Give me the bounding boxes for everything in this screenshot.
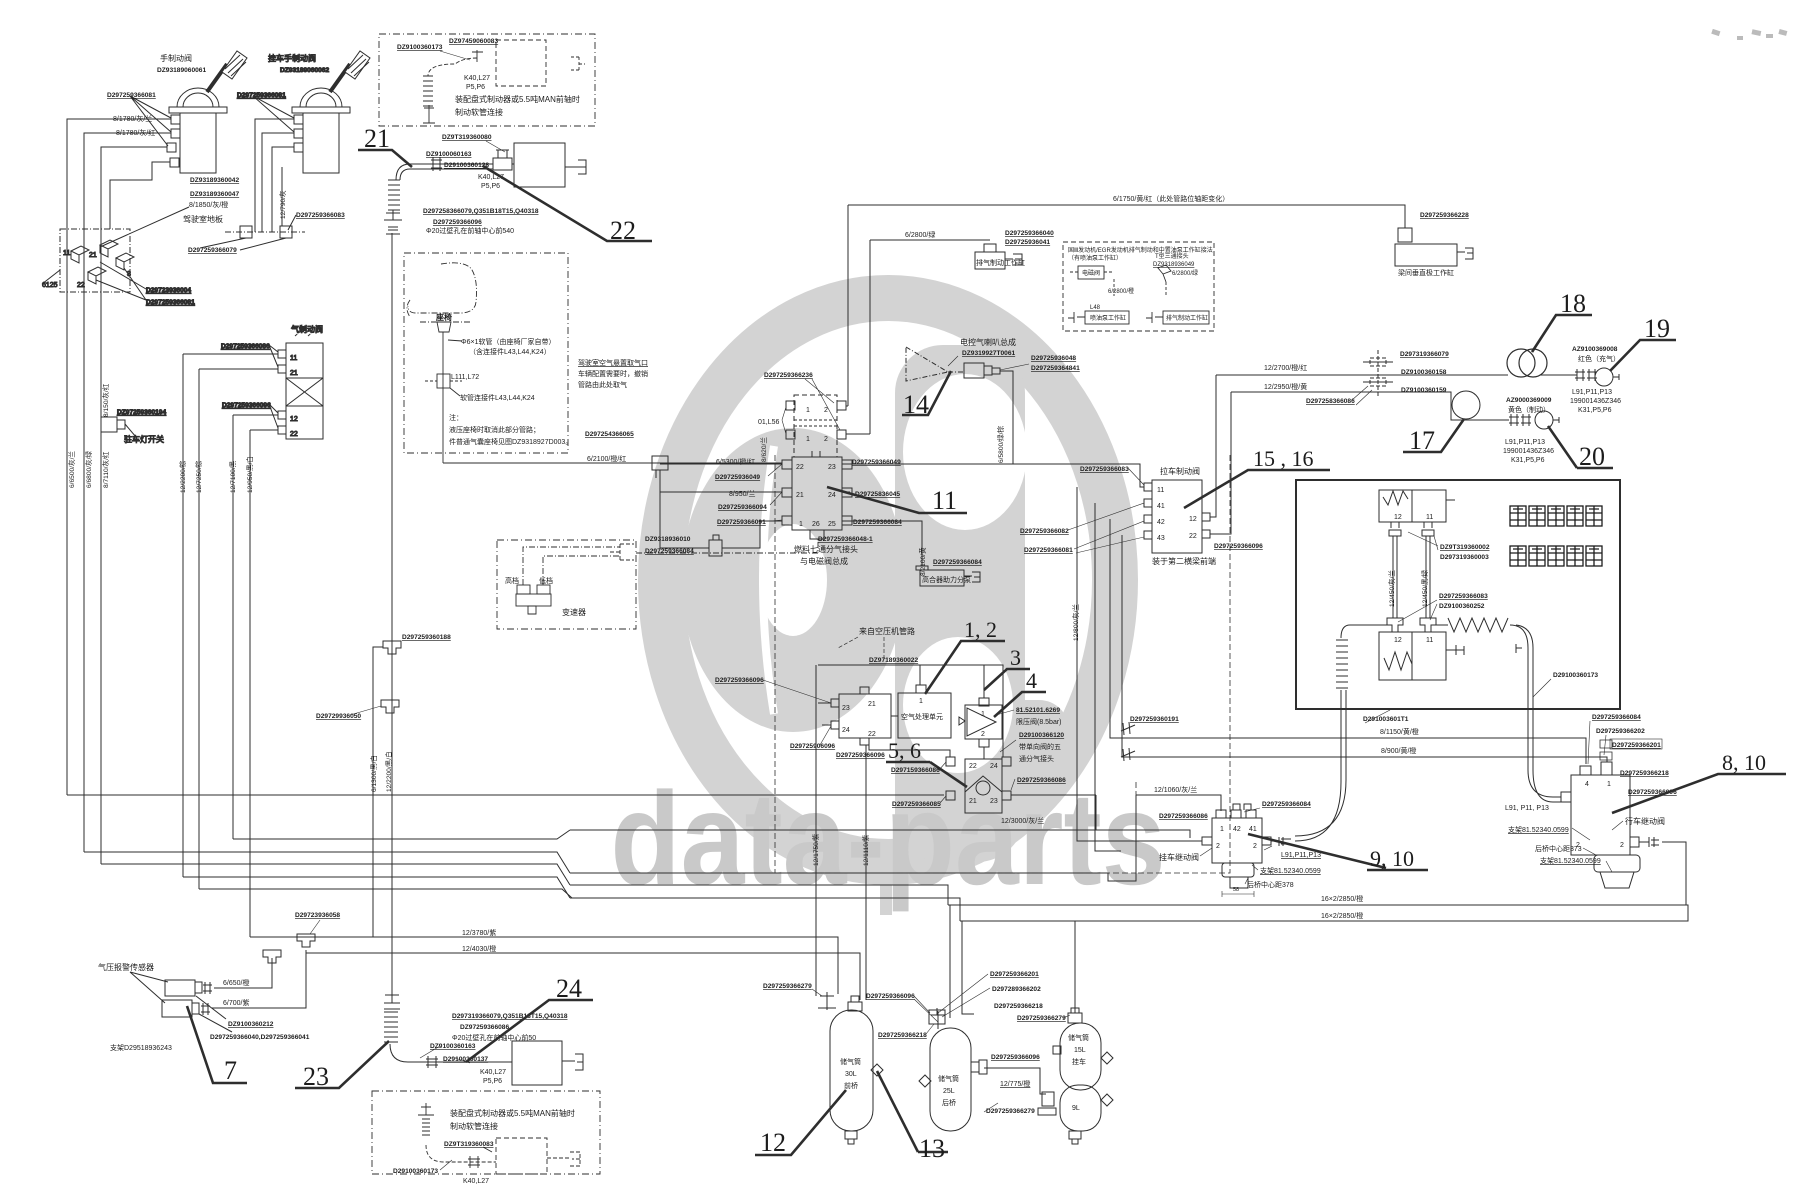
svg-text:12/450/灰/兰: 12/450/灰/兰	[1387, 570, 1396, 607]
svg-text:后桥: 后桥	[942, 1098, 956, 1107]
svg-text:后桥中心距373: 后桥中心距373	[1535, 844, 1582, 853]
svg-text:9L: 9L	[1072, 1105, 1080, 1112]
svg-text:8/620/兰: 8/620/兰	[759, 437, 768, 462]
svg-text:装配盘式制动器或5.5吨MAN前轴时: 装配盘式制动器或5.5吨MAN前轴时	[450, 1108, 575, 1118]
svg-text:D297259366084: D297259366084	[1592, 714, 1641, 721]
svg-text:D29725936048: D29725936048	[1031, 355, 1076, 362]
svg-text:8/150/灰/红: 8/150/灰/红	[101, 383, 110, 417]
svg-text:储气筒: 储气筒	[840, 1057, 861, 1066]
svg-text:DZ9100360252: DZ9100360252	[1439, 603, 1485, 610]
svg-text:D297259366081: D297259366081	[1024, 547, 1073, 554]
svg-text:D297259366048-1: D297259366048-1	[818, 536, 873, 543]
svg-text:红色（充气）: 红色（充气）	[1578, 354, 1620, 363]
svg-text:D29729936050: D29729936050	[316, 713, 361, 720]
svg-text:2: 2	[1253, 843, 1257, 850]
svg-text:DZ97259360194: DZ97259360194	[117, 409, 166, 416]
svg-text:限压阀(8.5bar): 限压阀(8.5bar)	[1016, 717, 1062, 726]
svg-text:喷油泵工作缸: 喷油泵工作缸	[1090, 314, 1126, 322]
svg-text:6/5800/绿/棕: 6/5800/绿/棕	[996, 426, 1005, 463]
svg-text:22: 22	[868, 731, 876, 738]
svg-text:D29100360128: D29100360128	[444, 162, 489, 169]
svg-text:L91, P11, P13: L91, P11, P13	[1505, 805, 1549, 812]
svg-text:1: 1	[1220, 826, 1224, 833]
svg-text:6/2800/橙: 6/2800/橙	[1108, 287, 1134, 295]
svg-text:6/650/橙: 6/650/橙	[223, 978, 249, 987]
svg-text:42: 42	[1233, 826, 1241, 833]
svg-text:24: 24	[828, 492, 836, 499]
svg-text:DZ9100360163: DZ9100360163	[430, 1043, 476, 1050]
svg-text:DZ9318936010: DZ9318936010	[645, 536, 691, 543]
svg-text:驾驶室地板: 驾驶室地板	[183, 214, 223, 224]
svg-text:液压座椅时取消此部分管路；: 液压座椅时取消此部分管路；	[449, 425, 540, 434]
svg-text:2: 2	[1216, 843, 1220, 850]
svg-text:DZ9319927T0061: DZ9319927T0061	[962, 350, 1015, 357]
svg-text:D297259366218: D297259366218	[878, 1032, 927, 1039]
svg-text:6/1300/黑/白: 6/1300/黑/白	[369, 755, 378, 792]
svg-text:data-parts: data-parts	[610, 766, 1165, 913]
svg-text:23: 23	[303, 1062, 329, 1091]
svg-text:高合器助力分泵: 高合器助力分泵	[922, 575, 971, 584]
svg-text:12/3000/灰/兰: 12/3000/灰/兰	[1001, 816, 1044, 825]
svg-text:（有喷油泵工作缸）: （有喷油泵工作缸）	[1068, 254, 1122, 262]
svg-text:D297259366096: D297259366096	[991, 1054, 1040, 1061]
svg-text:8/1780/灰/兰: 8/1780/灰/兰	[113, 114, 152, 123]
svg-text:国Ⅲ发动机/EGR发动机排气制动和中置油泵工作缸接法: 国Ⅲ发动机/EGR发动机排气制动和中置油泵工作缸接法	[1068, 246, 1213, 254]
svg-text:D29100360137: D29100360137	[443, 1056, 488, 1063]
svg-text:12/2950/橙/黄: 12/2950/橙/黄	[1264, 382, 1307, 391]
svg-text:12/1750/紫: 12/1750/紫	[812, 833, 820, 866]
svg-text:D297259366279: D297259366279	[1017, 1015, 1066, 1022]
svg-text:制动软管连接: 制动软管连接	[450, 1121, 498, 1131]
svg-text:6/5300/橙/红: 6/5300/橙/红	[716, 457, 755, 466]
svg-text:D297259366218: D297259366218	[994, 1003, 1043, 1010]
svg-text:D297259366084: D297259366084	[1262, 801, 1311, 808]
svg-text:D29725936041: D29725936041	[1005, 239, 1050, 246]
svg-text:气制动阀: 气制动阀	[291, 324, 323, 334]
svg-text:12/7250/棕: 12/7250/棕	[194, 460, 203, 493]
svg-text:4: 4	[1026, 668, 1037, 693]
svg-text:排气制动工作缸: 排气制动工作缸	[1166, 314, 1208, 322]
svg-text:20: 20	[1579, 442, 1605, 471]
svg-text:D297259366228: D297259366228	[1420, 212, 1469, 219]
svg-text:12/1060/灰/兰: 12/1060/灰/兰	[1154, 785, 1197, 794]
svg-text:排气制动工作缸: 排气制动工作缸	[976, 258, 1025, 267]
svg-text:21: 21	[796, 492, 804, 499]
svg-text:D29100366120: D29100366120	[1019, 732, 1064, 739]
svg-text:22: 22	[290, 431, 298, 438]
svg-text:D297259366081: D297259366081	[237, 92, 286, 99]
svg-text:22: 22	[77, 282, 85, 289]
svg-text:12/2700/橙/红: 12/2700/橙/红	[1264, 363, 1307, 372]
svg-text:D297259366094: D297259366094	[718, 504, 767, 511]
svg-text:K40,L27: K40,L27	[480, 1069, 506, 1076]
svg-text:81.52101.6269: 81.52101.6269	[1016, 707, 1060, 714]
svg-text:DZ9T319360002: DZ9T319360002	[1440, 544, 1490, 551]
svg-text:K31,P5,P6: K31,P5,P6	[1578, 407, 1612, 414]
svg-text:驻车灯开关: 驻车灯开关	[124, 434, 164, 444]
svg-text:1: 1	[806, 436, 810, 443]
svg-text:1: 1	[806, 407, 810, 414]
svg-text:21: 21	[290, 370, 298, 377]
svg-text:DZ97459060083: DZ97459060083	[449, 38, 498, 45]
svg-text:D29725906096: D29725906096	[790, 743, 835, 750]
svg-text:1: 1	[981, 711, 985, 718]
svg-text:12/450/黑/绿: 12/450/黑/绿	[1420, 570, 1429, 607]
svg-text:D297258366086: D297258366086	[1306, 398, 1355, 405]
svg-text:15L: 15L	[1074, 1047, 1086, 1054]
svg-text:P5,P6: P5,P6	[466, 84, 485, 91]
svg-text:17: 17	[1409, 426, 1435, 455]
svg-text:DZ9100360173: DZ9100360173	[397, 44, 443, 51]
svg-text:D297259366040: D297259366040	[1005, 230, 1054, 237]
svg-text:16×2/2850/橙: 16×2/2850/橙	[1321, 894, 1363, 903]
svg-text:8/1780/灰/红: 8/1780/灰/红	[116, 128, 155, 137]
svg-text:1, 2: 1, 2	[964, 617, 997, 642]
svg-text:24: 24	[990, 763, 998, 770]
svg-text:22: 22	[1189, 533, 1197, 540]
svg-text:26: 26	[812, 521, 820, 528]
svg-text:3: 3	[1010, 645, 1021, 670]
svg-text:18: 18	[1560, 289, 1586, 318]
svg-text:42: 42	[1157, 519, 1165, 526]
svg-text:6/700/紫: 6/700/紫	[223, 999, 249, 1007]
svg-text:4: 4	[1585, 781, 1589, 788]
svg-text:D297259366236: D297259366236	[764, 372, 813, 379]
svg-text:D297259366279: D297259366279	[763, 983, 812, 990]
svg-text:12/800/灰/兰: 12/800/灰/兰	[1071, 604, 1080, 641]
svg-text:D29100360173: D29100360173	[1553, 672, 1598, 679]
svg-text:储气筒: 储气筒	[1068, 1033, 1089, 1042]
svg-text:6/2800/绿: 6/2800/绿	[1172, 269, 1198, 277]
svg-text:12: 12	[1394, 637, 1402, 644]
svg-text:199001436Z346: 199001436Z346	[1503, 448, 1554, 455]
svg-text:DZ9100060163: DZ9100060163	[426, 151, 472, 158]
svg-text:D297259366096: D297259366096	[222, 402, 271, 409]
svg-text:11: 11	[1426, 514, 1433, 521]
svg-text:D297159366086: D297159366086	[891, 767, 940, 774]
svg-text:D297259366202: D297259366202	[1596, 728, 1645, 735]
svg-text:D29725936049: D29725936049	[715, 474, 760, 481]
svg-text:D297319360003: D297319360003	[1440, 554, 1489, 561]
svg-text:变速器: 变速器	[562, 607, 586, 617]
svg-text:带单向阀的五: 带单向阀的五	[1019, 742, 1061, 751]
svg-text:DZ97189360022: DZ97189360022	[869, 657, 918, 664]
svg-text:D29100360173: D29100360173	[393, 1168, 438, 1175]
svg-text:D297259366084: D297259366084	[645, 548, 694, 555]
svg-text:23: 23	[842, 705, 850, 712]
svg-text:P5,P6: P5,P6	[483, 1078, 502, 1085]
svg-text:DZ9100360212: DZ9100360212	[228, 1021, 274, 1028]
svg-text:8/900/黄/橙: 8/900/黄/橙	[1381, 746, 1416, 755]
svg-text:制动软管连接: 制动软管连接	[455, 107, 503, 117]
svg-text:1: 1	[919, 698, 923, 705]
svg-text:12/3780/紫: 12/3780/紫	[462, 929, 496, 937]
svg-text:6125: 6125	[42, 282, 58, 289]
svg-text:D297259366086: D297259366086	[1159, 813, 1208, 820]
svg-text:D297319366079: D297319366079	[1400, 351, 1449, 358]
svg-text:空气处理单元: 空气处理单元	[901, 712, 943, 721]
svg-text:黄色（制动）: 黄色（制动）	[1508, 405, 1550, 414]
svg-text:13: 13	[919, 1134, 945, 1163]
svg-text:D297289366202: D297289366202	[992, 986, 1041, 993]
svg-text:D297259366084: D297259366084	[933, 559, 982, 566]
svg-text:2: 2	[1620, 842, 1624, 849]
svg-text:6/2800/绿: 6/2800/绿	[905, 230, 935, 239]
svg-text:12: 12	[1394, 514, 1402, 521]
svg-text:支架81.52340.0599: 支架81.52340.0599	[1508, 825, 1569, 834]
svg-text:12/950/黑/白: 12/950/黑/白	[245, 456, 254, 493]
svg-text:L91,P11,P13: L91,P11,P13	[1505, 439, 1545, 446]
svg-text:支架81.52340.0599: 支架81.52340.0599	[1540, 856, 1601, 865]
svg-text:D29723936004: D29723936004	[146, 287, 191, 294]
svg-text:DZ9T319360080: DZ9T319360080	[442, 134, 492, 141]
svg-text:6/6800/灰/绿: 6/6800/灰/绿	[84, 451, 93, 488]
svg-text:3: 3	[127, 271, 131, 278]
svg-text:D297259366083: D297259366083	[1439, 593, 1488, 600]
svg-text:D297259366096: D297259366096	[836, 752, 885, 759]
svg-text:23: 23	[990, 798, 998, 805]
svg-text:D297258366079,Q351B18T15,Q4031: D297258366079,Q351B18T15,Q40318	[423, 208, 539, 215]
svg-text:梁间垂直极工作缸: 梁间垂直极工作缸	[1398, 268, 1454, 277]
svg-text:D297259360191: D297259360191	[1130, 716, 1179, 723]
svg-text:23: 23	[828, 464, 836, 471]
svg-text:D297259366096: D297259366096	[866, 993, 915, 1000]
svg-text:D297259366218: D297259366218	[1620, 770, 1669, 777]
svg-text:21: 21	[868, 701, 876, 708]
svg-text:22: 22	[610, 216, 636, 245]
svg-text:DZ93189060062: DZ93189060062	[280, 67, 329, 74]
svg-text:22: 22	[969, 763, 977, 770]
svg-text:T型三通接头: T型三通接头	[1155, 252, 1189, 260]
svg-text:8/1150/黄/橙: 8/1150/黄/橙	[1380, 727, 1419, 736]
svg-text:来自空压机管路: 来自空压机管路	[859, 626, 915, 636]
svg-text:D291003601T1: D291003601T1	[1363, 716, 1409, 723]
svg-text:21: 21	[89, 252, 97, 259]
svg-text:D297259366086: D297259366086	[1017, 777, 1066, 784]
svg-text:11: 11	[63, 250, 70, 257]
svg-text:2: 2	[824, 436, 828, 443]
svg-text:（含连接件L43,L44,K24）: （含连接件L43,L44,K24）	[469, 347, 551, 356]
svg-text:高档: 高档	[505, 576, 519, 585]
svg-text:DZ97259366086: DZ97259366086	[460, 1024, 509, 1031]
svg-text:D297259366096: D297259366096	[1214, 543, 1263, 550]
svg-text:AZ9100369008: AZ9100369008	[1572, 346, 1618, 353]
svg-text:2: 2	[824, 407, 828, 414]
svg-text:D297259366049: D297259366049	[852, 459, 901, 466]
svg-text:6/1750/黄/红（此处管路位轴距变化）: 6/1750/黄/红（此处管路位轴距变化）	[1113, 194, 1229, 203]
svg-text:K40,L27: K40,L27	[463, 1178, 489, 1185]
svg-text:装于第二横梁前端: 装于第二横梁前端	[1152, 556, 1216, 566]
svg-text:D297259366083: D297259366083	[1080, 466, 1129, 473]
svg-text:11: 11	[1426, 637, 1433, 644]
svg-text:D297259366082: D297259366082	[1020, 528, 1069, 535]
svg-text:41: 41	[1249, 826, 1257, 833]
svg-text:12/2200/棕: 12/2200/棕	[178, 460, 187, 493]
svg-text:行车继动阀: 行车继动阀	[1625, 816, 1665, 826]
svg-text:K31,P5,P6: K31,P5,P6	[1511, 457, 1545, 464]
svg-text:前桥: 前桥	[844, 1081, 858, 1090]
svg-text:D297259366201: D297259366201	[1612, 742, 1661, 749]
svg-text:座椅: 座椅	[435, 312, 452, 322]
svg-text:注：: 注：	[449, 413, 463, 422]
svg-text:气压报警传感器: 气压报警传感器	[98, 962, 154, 972]
svg-text:储气筒: 储气筒	[938, 1074, 959, 1083]
svg-text:12: 12	[1189, 516, 1197, 523]
svg-text:Φ6×1软管（由座椅厂家自带）: Φ6×1软管（由座椅厂家自带）	[461, 337, 555, 346]
svg-text:燃料七通分气接头: 燃料七通分气接头	[794, 544, 858, 554]
svg-text:DZ93189060061: DZ93189060061	[157, 67, 206, 74]
svg-text:D297259366081: D297259366081	[146, 299, 195, 306]
svg-text:199001436Z346: 199001436Z346	[1570, 398, 1621, 405]
svg-text:L111,L72: L111,L72	[451, 374, 479, 381]
svg-text:D297254366065: D297254366065	[585, 431, 634, 438]
svg-text:8/1850/灰/橙: 8/1850/灰/橙	[189, 200, 228, 209]
svg-text:8, 10: 8, 10	[1722, 750, 1766, 775]
svg-text:1: 1	[1607, 781, 1611, 788]
svg-text:DZ9T319360083: DZ9T319360083	[444, 1141, 494, 1148]
svg-text:12/2200/黑/白: 12/2200/黑/白	[384, 751, 393, 792]
svg-text:后桥中心距378: 后桥中心距378	[1247, 880, 1294, 889]
svg-text:挂车手制动阀: 挂车手制动阀	[268, 53, 316, 63]
svg-text:21: 21	[969, 798, 977, 805]
svg-text:L48: L48	[1090, 305, 1101, 311]
svg-text:43: 43	[1157, 535, 1165, 542]
svg-text:DZ9100360158: DZ9100360158	[1401, 369, 1447, 376]
svg-text:支架D29518936243: 支架D29518936243	[110, 1043, 172, 1052]
svg-text:15 , 16: 15 , 16	[1253, 446, 1314, 471]
svg-text:驾驶室空气悬置取气口: 驾驶室空气悬置取气口	[578, 358, 648, 367]
svg-text:D297259366040,D297259366041: D297259366040,D297259366041	[210, 1034, 310, 1041]
svg-text:D297319366079,Q351B18T15,Q4031: D297319366079,Q351B18T15,Q40318	[452, 1013, 568, 1020]
svg-text:D297259366085: D297259366085	[892, 801, 941, 808]
svg-text:车辆配置需要时，撤销: 车辆配置需要时，撤销	[578, 369, 648, 378]
svg-text:11: 11	[932, 486, 957, 515]
svg-text:Φ20过壁孔在前轴中心前540: Φ20过壁孔在前轴中心前540	[426, 226, 514, 235]
svg-text:30L: 30L	[845, 1071, 857, 1078]
svg-text:D297259364841: D297259364841	[1031, 365, 1080, 372]
svg-text:19: 19	[1644, 314, 1670, 343]
svg-text:K40,L27: K40,L27	[464, 75, 490, 82]
svg-text:01,L56: 01,L56	[758, 419, 780, 426]
svg-text:D297259366086: D297259366086	[221, 343, 270, 350]
svg-text:D297259366079: D297259366079	[188, 247, 237, 254]
svg-text:DZ93189360047: DZ93189360047	[190, 191, 239, 198]
svg-text:电磁阀: 电磁阀	[1082, 269, 1100, 277]
svg-text:D297259366084: D297259366084	[853, 519, 902, 526]
svg-text:22: 22	[796, 464, 804, 471]
svg-text:手制动阀: 手制动阀	[160, 53, 192, 63]
svg-text:25: 25	[828, 521, 836, 528]
svg-text:25L: 25L	[943, 1088, 955, 1095]
svg-text:与电磁阀总成: 与电磁阀总成	[800, 556, 848, 566]
svg-text:24: 24	[556, 974, 582, 1003]
svg-text:8/950/兰: 8/950/兰	[729, 489, 755, 498]
svg-text:12/775/橙: 12/775/橙	[1000, 1079, 1030, 1088]
svg-text:8/2100/黄: 8/2100/黄	[918, 547, 927, 576]
svg-text:电控气喇叭总成: 电控气喇叭总成	[960, 337, 1016, 347]
svg-text:D29723936058: D29723936058	[295, 912, 340, 919]
svg-text:L91,P11,P13: L91,P11,P13	[1572, 389, 1612, 396]
svg-text:L91,P11,P13: L91,P11,P13	[1281, 852, 1321, 859]
svg-text:1: 1	[799, 521, 803, 528]
svg-text:DZ93189360042: DZ93189360042	[190, 177, 239, 184]
svg-text:12/1110/紫: 12/1110/紫	[862, 834, 870, 866]
svg-text:6/6500/灰/兰: 6/6500/灰/兰	[67, 451, 76, 488]
svg-text:拉车制动阀: 拉车制动阀	[1160, 466, 1200, 476]
svg-text:装配盘式制动器或5.5吨MAN前轴时: 装配盘式制动器或5.5吨MAN前轴时	[455, 94, 580, 104]
svg-text:9, 10: 9, 10	[1370, 846, 1414, 871]
svg-text:7: 7	[224, 1056, 237, 1085]
svg-text:低档: 低档	[539, 576, 553, 585]
svg-text:6/2100/橙/红: 6/2100/橙/红	[587, 454, 626, 463]
svg-text:D297259366096: D297259366096	[433, 219, 482, 226]
svg-text:21: 21	[364, 124, 390, 153]
svg-text:通分气接头: 通分气接头	[1019, 754, 1054, 763]
svg-text:D297259366091: D297259366091	[717, 519, 766, 526]
svg-text:24: 24	[842, 727, 850, 734]
svg-text:管路由此处取气: 管路由此处取气	[578, 380, 627, 389]
svg-text:41: 41	[1157, 503, 1165, 510]
svg-text:软管连接件L43,L44,K24: 软管连接件L43,L44,K24	[460, 393, 535, 402]
svg-text:16×2/2850/橙: 16×2/2850/橙	[1321, 911, 1363, 920]
svg-text:12: 12	[290, 416, 298, 423]
svg-text:D297259366081: D297259366081	[107, 92, 156, 99]
svg-text:58: 58	[1233, 887, 1239, 893]
svg-text:D297259366279: D297259366279	[986, 1108, 1035, 1115]
svg-text:2: 2	[981, 731, 985, 738]
svg-text:DZ9100360159: DZ9100360159	[1401, 387, 1447, 394]
svg-text:D297259360188: D297259360188	[402, 634, 451, 641]
svg-text:AZ9000369009: AZ9000369009	[1506, 397, 1552, 404]
svg-text:支架81.52340.0599: 支架81.52340.0599	[1260, 866, 1321, 875]
svg-text:D297259366096: D297259366096	[715, 677, 764, 684]
svg-text:11: 11	[1157, 487, 1164, 494]
svg-text:12: 12	[760, 1128, 786, 1157]
svg-text:件普通气囊座椅见图DZ9318927D003。: 件普通气囊座椅见图DZ9318927D003。	[449, 437, 572, 446]
svg-text:P5,P6: P5,P6	[481, 183, 500, 190]
svg-text:挂车继动阀: 挂车继动阀	[1159, 852, 1199, 862]
svg-text:11: 11	[290, 355, 297, 362]
svg-text:挂车: 挂车	[1072, 1057, 1086, 1066]
svg-text:8/7110/灰/红: 8/7110/灰/红	[101, 451, 110, 488]
svg-text:D297259366083: D297259366083	[296, 212, 345, 219]
svg-text:D297259366201: D297259366201	[990, 971, 1039, 978]
svg-text:12/7100/黑: 12/7100/黑	[229, 460, 237, 493]
svg-text:14: 14	[903, 390, 929, 419]
svg-text:12/4030/橙: 12/4030/橙	[462, 944, 496, 953]
